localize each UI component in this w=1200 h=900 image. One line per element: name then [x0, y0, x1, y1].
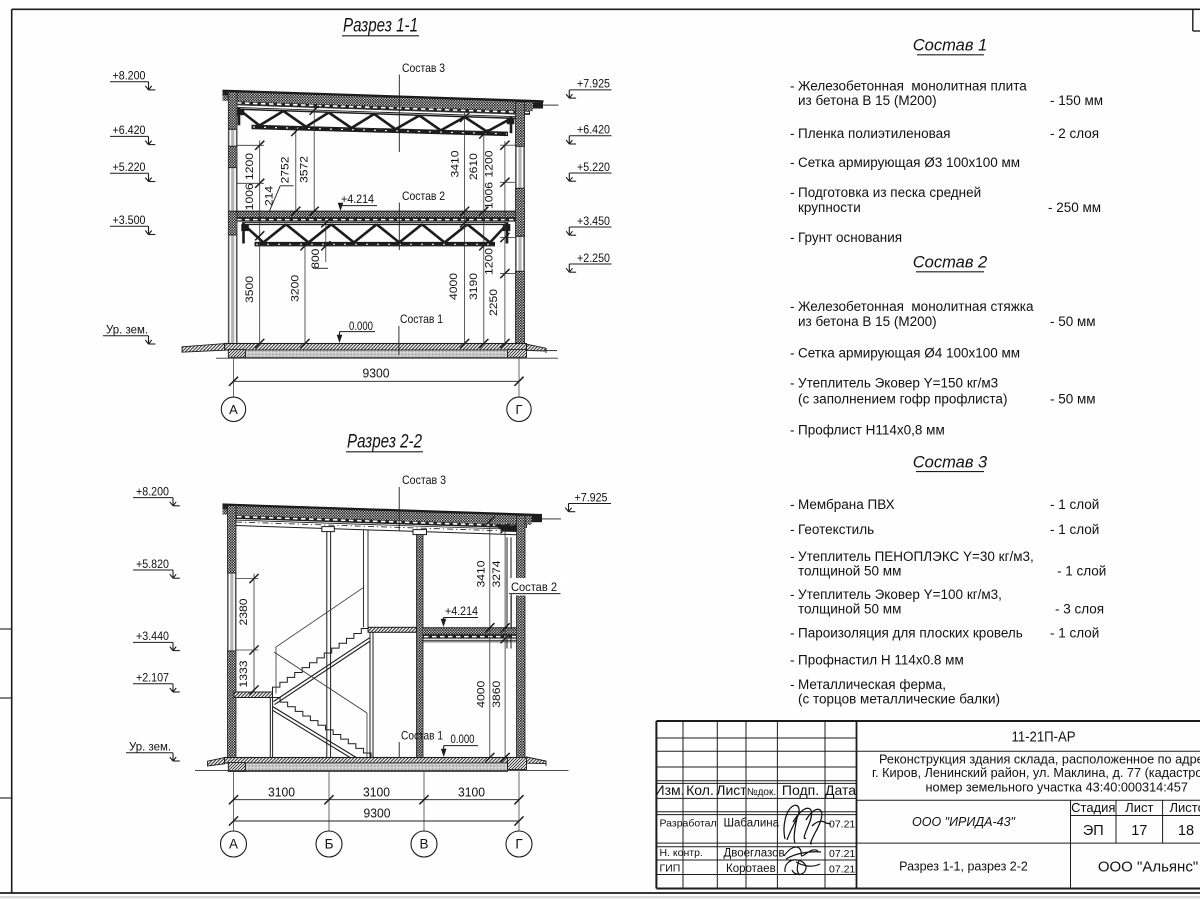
svg-text:2752: 2752	[280, 157, 292, 184]
svg-text:Разработал: Разработал	[660, 818, 717, 830]
svg-text:Утеплитель Эковер Y=100 кг/м3,: Утеплитель Эковер Y=100 кг/м3,	[798, 587, 1002, 602]
svg-text:Железобетонная монолитная стя: Железобетонная монолитная стяжка	[798, 299, 1034, 314]
svg-text:Г: Г	[515, 402, 522, 417]
svg-text:ЭП: ЭП	[1083, 823, 1104, 839]
svg-text:Разрез 2-2: Разрез 2-2	[347, 432, 422, 453]
svg-text:1006: 1006	[484, 182, 496, 209]
svg-text:1200: 1200	[484, 151, 496, 178]
svg-text:+7.925: +7.925	[577, 79, 610, 91]
svg-text:+6.420: +6.420	[113, 125, 146, 137]
svg-text:Состав 1: Состав 1	[400, 312, 443, 326]
svg-text:- 50 мм: - 50 мм	[1050, 392, 1096, 407]
svg-text:Металлическая ферма,: Металлическая ферма,	[798, 677, 946, 692]
svg-text:Сетка армирующая Ø3 100х100 мм: Сетка армирующая Ø3 100х100 мм	[798, 155, 1020, 170]
svg-text:Изм.: Изм.	[655, 782, 685, 798]
svg-text:-: -	[790, 549, 795, 564]
svg-text:из бетона В 15 (М200): из бетона В 15 (М200)	[798, 93, 937, 108]
svg-text:1200: 1200	[484, 248, 496, 275]
svg-text:3100: 3100	[458, 785, 485, 799]
svg-text:А: А	[229, 402, 238, 417]
svg-text:-: -	[790, 626, 795, 641]
svg-text:ООО "Альянс": ООО "Альянс"	[1098, 859, 1198, 876]
svg-text:3410: 3410	[475, 561, 487, 588]
svg-text:+7.925: +7.925	[575, 492, 608, 504]
svg-text:1333: 1333	[238, 661, 250, 688]
svg-text:+5.220: +5.220	[577, 162, 610, 174]
svg-text:-: -	[790, 78, 795, 93]
svg-text:-: -	[790, 230, 795, 245]
svg-text:(с торцов металлические балки): (с торцов металлические балки)	[798, 692, 1000, 707]
svg-text:Подп.: Подп.	[782, 782, 819, 798]
svg-text:3100: 3100	[363, 785, 390, 799]
svg-text:Железобетонная монолитная пли: Железобетонная монолитная плита	[798, 78, 1027, 93]
svg-text:Стадия: Стадия	[1071, 800, 1115, 815]
svg-text:Профнастил Н 114х0.8 мм: Профнастил Н 114х0.8 мм	[798, 653, 964, 668]
svg-text:3860: 3860	[491, 681, 503, 708]
svg-text:г. Киров, Ленинский район, ул.: г. Киров, Ленинский район, ул. Маклина, …	[872, 766, 1200, 780]
svg-text:- 1 слой: - 1 слой	[1050, 497, 1099, 512]
svg-text:из бетона В 15 (М200): из бетона В 15 (М200)	[798, 314, 937, 329]
svg-text:Коротаев: Коротаев	[726, 863, 776, 875]
svg-text:+2.250: +2.250	[577, 253, 610, 265]
svg-text:Двоеглазов: Двоеглазов	[724, 848, 785, 860]
svg-text:Состав 3: Состав 3	[913, 453, 988, 471]
svg-text:Ур. зем.: Ур. зем.	[129, 742, 171, 754]
svg-text:3274: 3274	[491, 561, 503, 588]
svg-text:толщиной 50 мм: толщиной 50 мм	[798, 564, 901, 579]
svg-text:Шабалина: Шабалина	[724, 818, 780, 830]
svg-text:2610: 2610	[468, 153, 480, 180]
svg-text:Мембрана ПВХ: Мембрана ПВХ	[798, 497, 895, 512]
svg-text:3410: 3410	[449, 151, 461, 178]
svg-text:Н. контр.: Н. контр.	[660, 847, 703, 859]
svg-text:0.000: 0.000	[349, 321, 373, 333]
svg-text:-: -	[790, 346, 795, 361]
svg-text:- 2 слоя: - 2 слоя	[1050, 126, 1099, 141]
svg-text:-: -	[790, 155, 795, 170]
svg-text:- 1 слой: - 1 слой	[1050, 626, 1099, 641]
svg-text:3200: 3200	[290, 275, 302, 302]
svg-text:- 150 мм: - 150 мм	[1050, 93, 1103, 108]
svg-text:9300: 9300	[364, 807, 391, 821]
svg-text:Утеплитель ПЕНОПЛЭКС Y=30 кг/м: Утеплитель ПЕНОПЛЭКС Y=30 кг/м3,	[798, 549, 1034, 564]
svg-text:1200: 1200	[244, 153, 256, 180]
svg-text:-: -	[790, 299, 795, 314]
svg-text:Разрез 1-1: Разрез 1-1	[343, 16, 418, 37]
svg-text:Утеплитель Эковер Y=150 кг/м3: Утеплитель Эковер Y=150 кг/м3	[798, 376, 998, 391]
svg-text:-: -	[790, 185, 795, 200]
svg-text:214: 214	[263, 186, 275, 206]
svg-text:Ур. зем.: Ур. зем.	[106, 325, 148, 337]
svg-text:3100: 3100	[268, 785, 295, 799]
svg-text:-: -	[790, 497, 795, 512]
svg-text:-: -	[790, 522, 795, 537]
svg-text:+5.220: +5.220	[113, 162, 146, 174]
svg-text:3572: 3572	[299, 156, 311, 183]
svg-text:Состав 2: Состав 2	[511, 580, 557, 594]
svg-text:9300: 9300	[363, 367, 390, 381]
svg-text:+3.500: +3.500	[113, 215, 146, 227]
svg-text:+6.420: +6.420	[577, 125, 610, 137]
svg-text:- 250 мм: - 250 мм	[1048, 200, 1101, 215]
svg-text:Пленка полиэтиленовая: Пленка полиэтиленовая	[798, 126, 950, 141]
svg-text:- 1 слой: - 1 слой	[1057, 564, 1106, 579]
svg-text:Состав 1: Состав 1	[913, 37, 987, 55]
svg-text:18: 18	[1178, 823, 1194, 839]
svg-text:Дата: Дата	[825, 782, 856, 798]
svg-text:+8.200: +8.200	[136, 486, 169, 498]
svg-text:Лист: Лист	[716, 782, 747, 798]
svg-text:2380: 2380	[238, 599, 250, 626]
svg-text:+3.440: +3.440	[136, 631, 169, 643]
svg-text:-: -	[790, 677, 795, 692]
svg-text:0.000: 0.000	[451, 734, 475, 746]
svg-text:Состав 3: Состав 3	[402, 473, 446, 487]
svg-text:-: -	[790, 423, 795, 438]
svg-text:2250: 2250	[488, 289, 500, 316]
svg-text:номер земельного участка 43:40: номер земельного участка 43:40:000314:45…	[926, 780, 1188, 794]
svg-text:Состав 2: Состав 2	[913, 254, 987, 272]
svg-text:4000: 4000	[475, 681, 487, 708]
svg-text:3500: 3500	[244, 276, 256, 303]
svg-text:Б: Б	[325, 837, 334, 852]
svg-text:Подготовка из песка средней: Подготовка из песка средней	[798, 185, 981, 200]
svg-text:Лист: Лист	[1125, 800, 1153, 815]
svg-text:07.21: 07.21	[829, 848, 855, 860]
svg-text:крупности: крупности	[798, 200, 861, 215]
svg-text:+2.107: +2.107	[136, 673, 169, 685]
svg-text:1006: 1006	[244, 183, 256, 210]
svg-text:Состав 1: Состав 1	[401, 729, 443, 743]
svg-text:В: В	[419, 837, 428, 852]
svg-text:-: -	[790, 376, 795, 391]
svg-text:+8.200: +8.200	[113, 71, 146, 83]
svg-text:(с заполнением гофр профлиста): (с заполнением гофр профлиста)	[798, 392, 1007, 407]
svg-text:Состав 2: Состав 2	[402, 189, 445, 203]
svg-text:+4.214: +4.214	[341, 194, 375, 206]
svg-text:-: -	[790, 126, 795, 141]
svg-text:Пароизоляция для плоских крове: Пароизоляция для плоских кровель	[798, 626, 1023, 641]
svg-text:Грунт основания: Грунт основания	[798, 230, 902, 245]
svg-text:-: -	[790, 653, 795, 668]
svg-text:Разрез 1-1, разрез 2-2: Разрез 1-1, разрез 2-2	[899, 860, 1028, 874]
svg-text:11-21П-АР: 11-21П-АР	[1012, 730, 1076, 746]
svg-text:17: 17	[1131, 823, 1147, 839]
svg-text:Кол.: Кол.	[686, 782, 714, 798]
svg-text:Сетка армирующая Ø4 100х100 мм: Сетка армирующая Ø4 100х100 мм	[798, 346, 1020, 361]
svg-text:А: А	[229, 837, 238, 852]
svg-text:Геотекстиль: Геотекстиль	[798, 522, 874, 537]
svg-text:- 50 мм: - 50 мм	[1050, 314, 1096, 329]
svg-text:толщиной 50 мм: толщиной 50 мм	[798, 602, 901, 617]
svg-text:+4.214: +4.214	[445, 606, 479, 618]
svg-text:Реконструкция здания склада, р: Реконструкция здания склада, расположенн…	[879, 753, 1200, 767]
svg-text:3190: 3190	[468, 273, 480, 300]
svg-text:+3.450: +3.450	[577, 216, 610, 228]
svg-text:+5.820: +5.820	[136, 559, 169, 571]
svg-text:- 3 слоя: - 3 слоя	[1055, 602, 1104, 617]
svg-text:4000: 4000	[448, 273, 460, 300]
svg-text:Состав 3: Состав 3	[402, 61, 445, 75]
svg-text:Г: Г	[515, 837, 523, 852]
svg-text:-: -	[790, 587, 795, 602]
svg-text:ГИП: ГИП	[660, 863, 681, 875]
svg-text:800: 800	[310, 249, 322, 269]
svg-text:№док.: №док.	[747, 787, 776, 798]
svg-text:07.21: 07.21	[829, 819, 855, 831]
svg-text:07.21: 07.21	[829, 863, 855, 875]
svg-text:- 1 слой: - 1 слой	[1050, 522, 1099, 537]
svg-text:ООО "ИРИДА-43": ООО "ИРИДА-43"	[912, 815, 1016, 829]
svg-text:Профлист Н114х0,8 мм: Профлист Н114х0,8 мм	[798, 423, 945, 438]
svg-text:Листов: Листов	[1170, 800, 1200, 815]
